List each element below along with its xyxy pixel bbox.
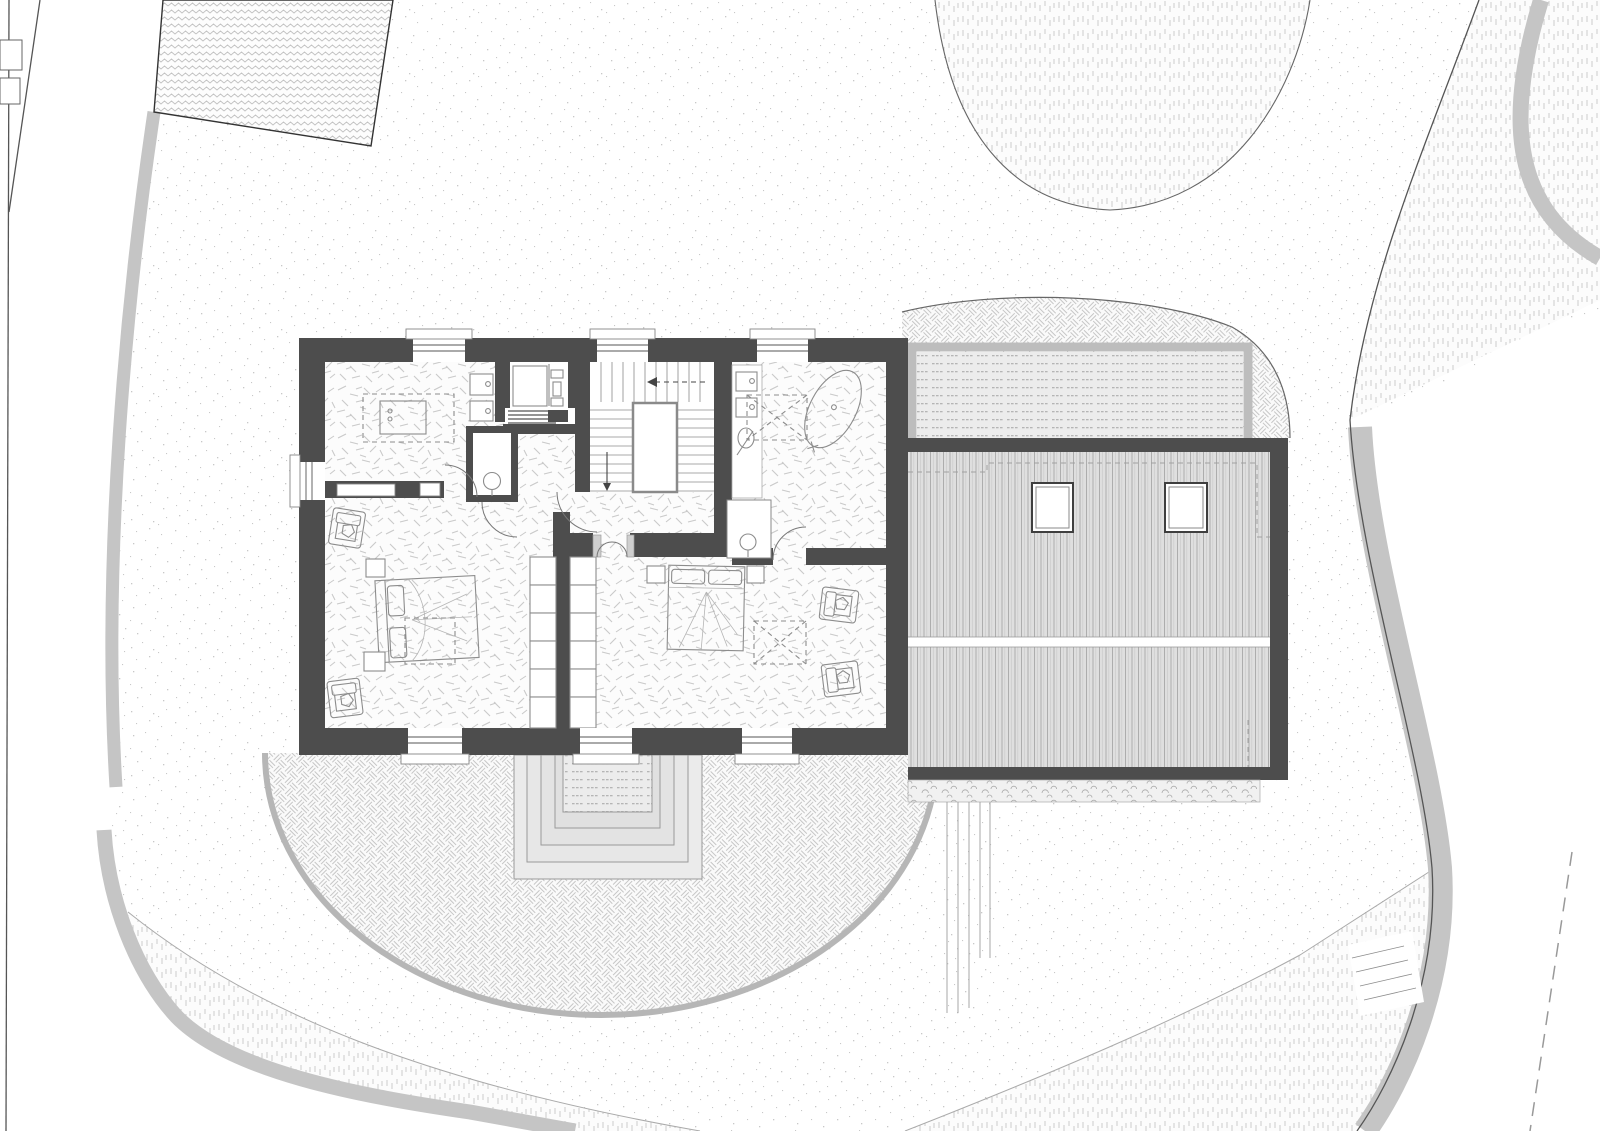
wc-wall-left [466, 426, 473, 502]
hall-wall-left [553, 533, 593, 557]
nightstand [364, 652, 385, 671]
wc-closet [727, 500, 771, 558]
roof-terrace-deck [917, 352, 1243, 438]
pebble-strip [908, 780, 1260, 802]
shaft-block [548, 410, 568, 422]
edge-marker-1 [0, 40, 22, 70]
roof-edge-bottom [908, 767, 1288, 780]
floor-plan-page [0, 0, 1600, 1131]
wc-wall-top [466, 426, 518, 433]
wc-closet-room [727, 500, 771, 558]
wall-between-bedrooms [556, 557, 570, 728]
wc-floor [473, 433, 511, 495]
window-left [290, 455, 325, 507]
roof-ridge [908, 637, 1270, 647]
wall-hung-bidet [470, 401, 493, 421]
wall-elevator-left [503, 362, 510, 408]
elevator-shaft [510, 362, 568, 408]
wardrobe-bedroom2 [570, 557, 596, 728]
shaft-vent-lines [505, 408, 575, 424]
wc [473, 433, 511, 496]
window-bottom-1 [401, 728, 469, 764]
wc-wall-right [511, 426, 518, 502]
elevator [505, 362, 575, 424]
nightstand [366, 559, 385, 577]
door-recess [420, 483, 440, 496]
window-top-2 [590, 329, 655, 362]
window-bench-niche [337, 484, 395, 496]
nightstand [747, 566, 764, 583]
wall-bathroom-south-right [806, 548, 886, 565]
wall-elevator-right [568, 362, 575, 408]
roof-wing [908, 438, 1288, 780]
door-jamb-sill [627, 535, 634, 557]
skylight-1 [1032, 483, 1073, 532]
wall-hung-toilet [470, 374, 493, 395]
garden-door-bottom [573, 728, 639, 764]
hall-wall-right [630, 533, 714, 557]
main-house [290, 329, 908, 764]
roof-edge-top [908, 438, 1288, 452]
edge-marker-2 [0, 78, 20, 104]
skylight-2 [1165, 483, 1207, 532]
stair-hall [590, 362, 714, 492]
wardrobe-bedroom1 [530, 557, 556, 728]
wc-wall-bottom [466, 495, 518, 502]
external-stair [1348, 931, 1424, 1016]
roof-edge-right [1270, 452, 1288, 767]
entry-porch-steps [514, 755, 702, 879]
window-bottom-2 [735, 728, 799, 764]
window-top-1 [406, 329, 472, 362]
window-top-3 [750, 329, 815, 362]
roof-terrace [912, 347, 1248, 440]
floor-plan-canvas [0, 0, 1600, 1131]
roof-cladding [908, 452, 1270, 767]
nightstand [647, 566, 665, 583]
stair-void [633, 403, 677, 492]
external-stair-landing [1348, 931, 1424, 1016]
wall-stair-left [575, 362, 590, 492]
